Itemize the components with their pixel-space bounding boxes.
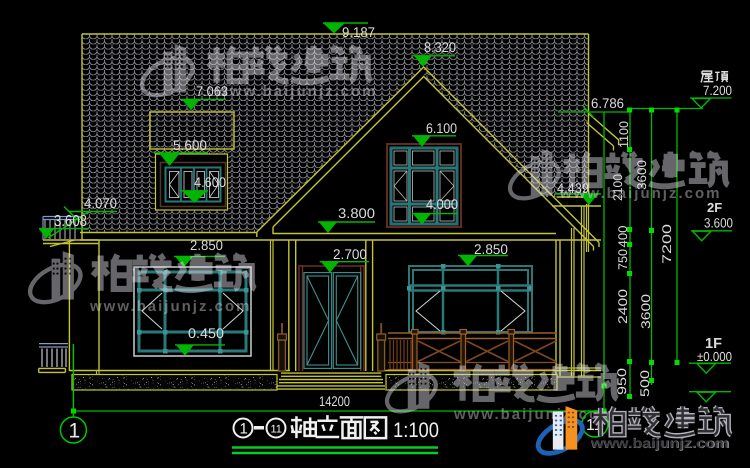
svg-text:1100: 1100: [617, 121, 631, 148]
svg-text:400: 400: [616, 225, 630, 247]
svg-text:7200: 7200: [660, 224, 674, 264]
svg-text:2400: 2400: [616, 289, 630, 324]
svg-text:1: 1: [240, 421, 248, 438]
svg-text:11: 11: [271, 424, 282, 436]
svg-text:950: 950: [615, 368, 629, 395]
svg-text:6.100: 6.100: [426, 120, 457, 136]
svg-text:500: 500: [638, 370, 652, 397]
svg-text:5.600: 5.600: [173, 137, 207, 153]
svg-text:3.600: 3.600: [704, 216, 733, 231]
svg-text:4.600: 4.600: [194, 174, 226, 190]
svg-text:4.070: 4.070: [84, 195, 117, 211]
svg-text:750: 750: [616, 249, 630, 270]
svg-text:2.850: 2.850: [474, 241, 508, 257]
svg-text:8.320: 8.320: [424, 39, 456, 55]
svg-text:6.786: 6.786: [591, 95, 624, 111]
svg-text:2.850: 2.850: [190, 237, 223, 253]
svg-text:3.800: 3.800: [338, 205, 375, 221]
svg-text:9.187: 9.187: [342, 24, 375, 40]
svg-text:www.baijunjz.com: www.baijunjz.com: [559, 185, 721, 202]
svg-text:3.608: 3.608: [54, 213, 87, 230]
svg-text:7.200: 7.200: [703, 83, 732, 98]
svg-text:2.700: 2.700: [333, 246, 367, 262]
svg-text:www.baijunjz.com: www.baijunjz.com: [590, 437, 728, 451]
svg-text:www.baijunjz.com: www.baijunjz.com: [215, 83, 377, 100]
svg-text:www.baijunjz.com: www.baijunjz.com: [89, 298, 251, 315]
svg-text:4.000: 4.000: [426, 196, 458, 212]
svg-text:1:100: 1:100: [393, 419, 439, 442]
svg-text:2F: 2F: [707, 200, 722, 215]
svg-text:1: 1: [69, 420, 81, 443]
svg-text:0.450: 0.450: [188, 325, 224, 341]
svg-text:3600: 3600: [639, 294, 653, 329]
svg-text:14200: 14200: [319, 393, 350, 409]
svg-text:±0.000: ±0.000: [697, 349, 732, 364]
